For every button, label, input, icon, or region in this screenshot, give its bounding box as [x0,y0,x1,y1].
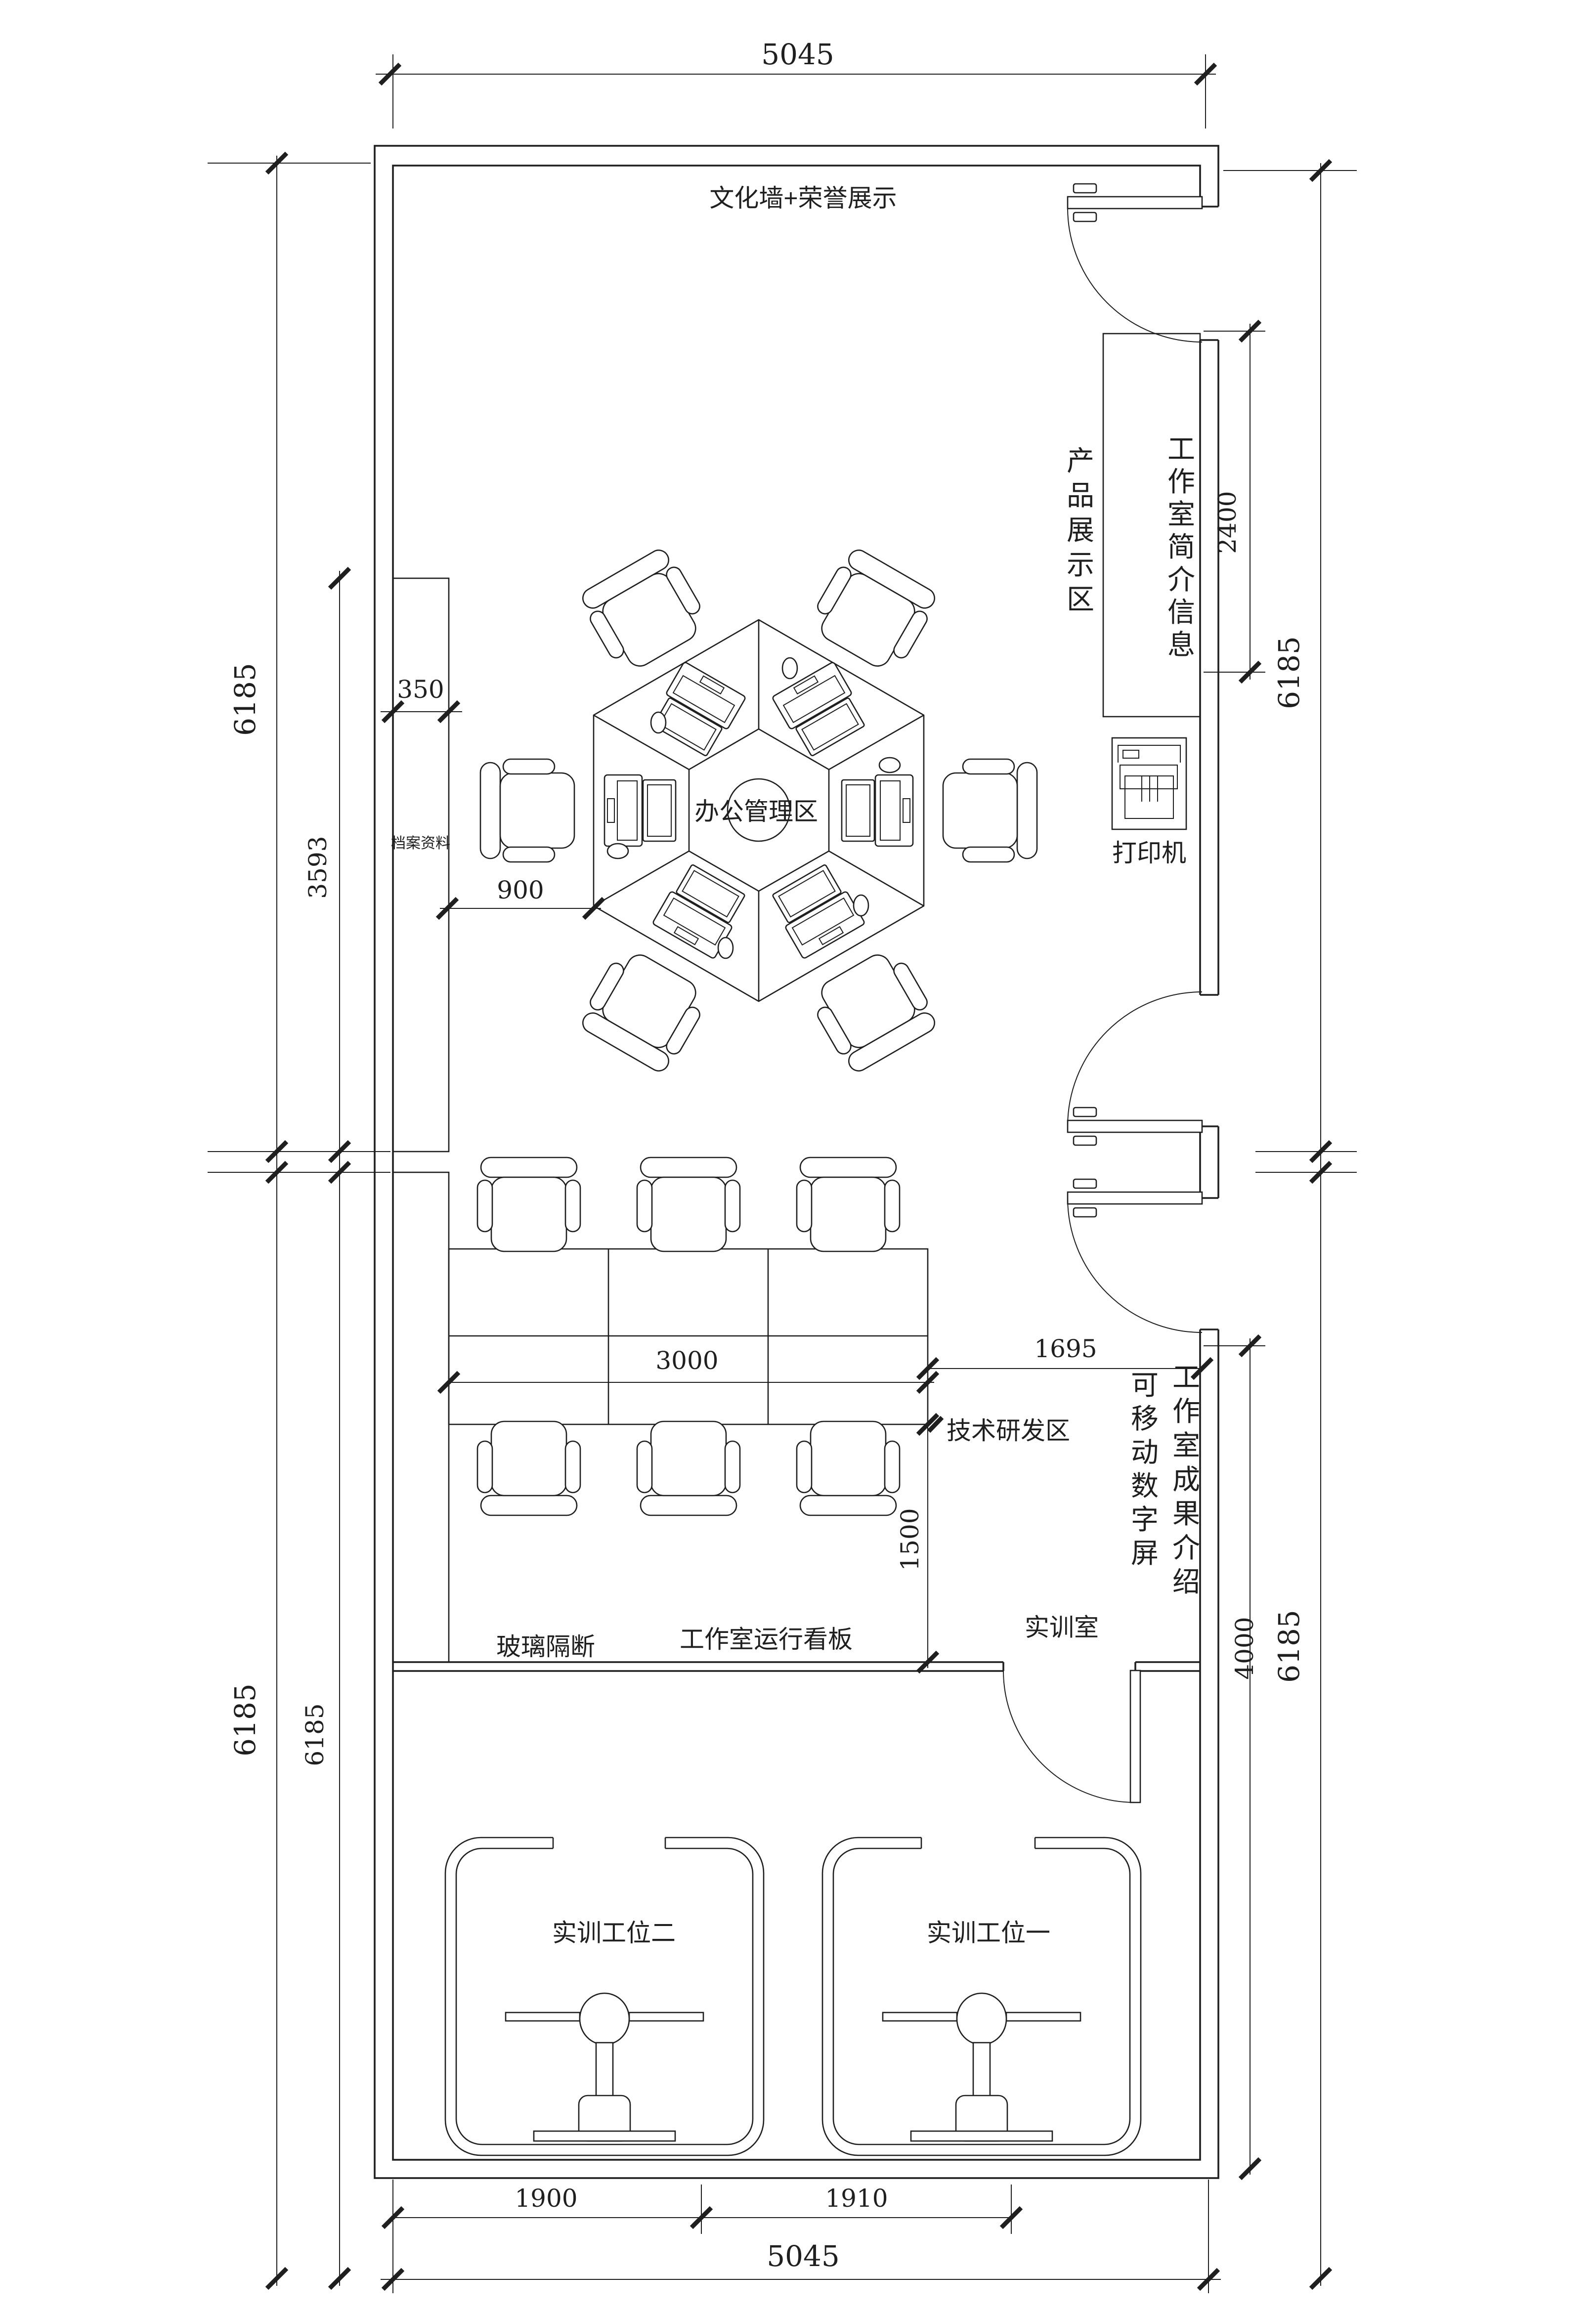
training-stations [445,1831,1141,2155]
label-office-admin: 办公管理区 [694,798,818,825]
label-archive-cabinet: 档案资料 [391,835,450,852]
double-door-lower [1068,1179,1202,1332]
label-training-station-2: 实训工位二 [552,1919,676,1947]
office-chair [637,1157,740,1251]
dimension-chains: 5045 5045 1900 1910 6185 3593 6185 6185 … [208,38,1357,2293]
conference-table [449,1157,928,1515]
glass-partition-wall [393,1662,1200,1671]
dim-top: 5045 [761,38,834,71]
labels: 文化墙+荣誉展示 产品展示区 工作室简介信息 办公管理区 档案资料 打印机 技术… [391,184,1200,1947]
office-chair [943,759,1037,862]
label-culture-wall: 文化墙+荣誉展示 [709,184,897,212]
dim-left-inner-upper: 3593 [303,836,332,899]
dim-right-outer-lower: 6185 [1272,1610,1306,1683]
dim-left-outer-lower: 6185 [228,1683,262,1756]
dim-shelf-offset: 900 [497,876,544,904]
archive-cabinets [393,578,449,1662]
dim-left-outer-upper: 6185 [228,663,262,736]
laptop [604,775,676,846]
training-station-1 [822,1831,1141,2155]
training-equipment [883,1993,1080,2141]
label-studio-intro: 工作室简介信息 [1167,433,1195,660]
dim-left-inner-lower: 6185 [301,1703,329,1766]
label-operation-board: 工作室运行看板 [680,1626,853,1653]
mouse [607,844,628,858]
label-movable-screen: 可移动数字屏 [1131,1370,1159,1569]
dim-opening-width: 1695 [1034,1334,1097,1363]
office-chair [637,1421,740,1515]
laptop [768,862,865,959]
office-chair [797,1421,900,1515]
office-chair [797,1157,900,1251]
laptop [842,775,913,846]
dim-bay-left: 1900 [515,2184,577,2213]
label-glass-partition: 玻璃隔断 [496,1633,595,1661]
floor-plan-page: 5045 5045 1900 1910 6185 3593 6185 6185 … [0,0,1596,2313]
label-training-room: 实训室 [1025,1614,1099,1641]
training-equipment [506,1993,703,2141]
mouse [879,758,900,772]
office-chair [477,1421,580,1515]
dim-bottom: 5045 [767,2239,840,2273]
dim-shelf-depth: 350 [397,675,444,704]
label-tech-rd: 技术研发区 [947,1417,1070,1445]
label-printer: 打印机 [1112,839,1186,867]
label-achievements: 工作室成果介绍 [1172,1362,1200,1597]
archive-cabinet-lower [393,1172,449,1662]
laptop [652,862,750,959]
archive-cabinet-upper [393,578,449,1152]
floor-plan-drawing: 5045 5045 1900 1910 6185 3593 6185 6185 … [0,0,1596,2313]
mouse [782,658,797,679]
label-training-station-1: 实训工位一 [927,1919,1050,1947]
dim-right-inner-upper: 2400 [1213,491,1242,554]
entry-door-top [1068,184,1202,342]
office-chair [480,759,574,862]
dim-table-length: 3000 [655,1346,718,1375]
label-product-display: 产品展示区 [1067,445,1094,615]
dim-rd-depth: 1500 [896,1508,924,1571]
training-station-2 [445,1831,764,2155]
dim-right-inner-lower: 4000 [1230,1617,1259,1679]
mouse [651,712,666,733]
mouse [854,895,868,916]
dim-right-outer-upper: 6185 [1272,636,1306,709]
double-door-upper [1068,992,1202,1145]
office-chair [477,1157,580,1251]
mouse [718,938,733,958]
dim-bay-right: 1910 [825,2184,888,2213]
training-room-door [1003,1670,1140,1802]
printer [1112,738,1186,829]
